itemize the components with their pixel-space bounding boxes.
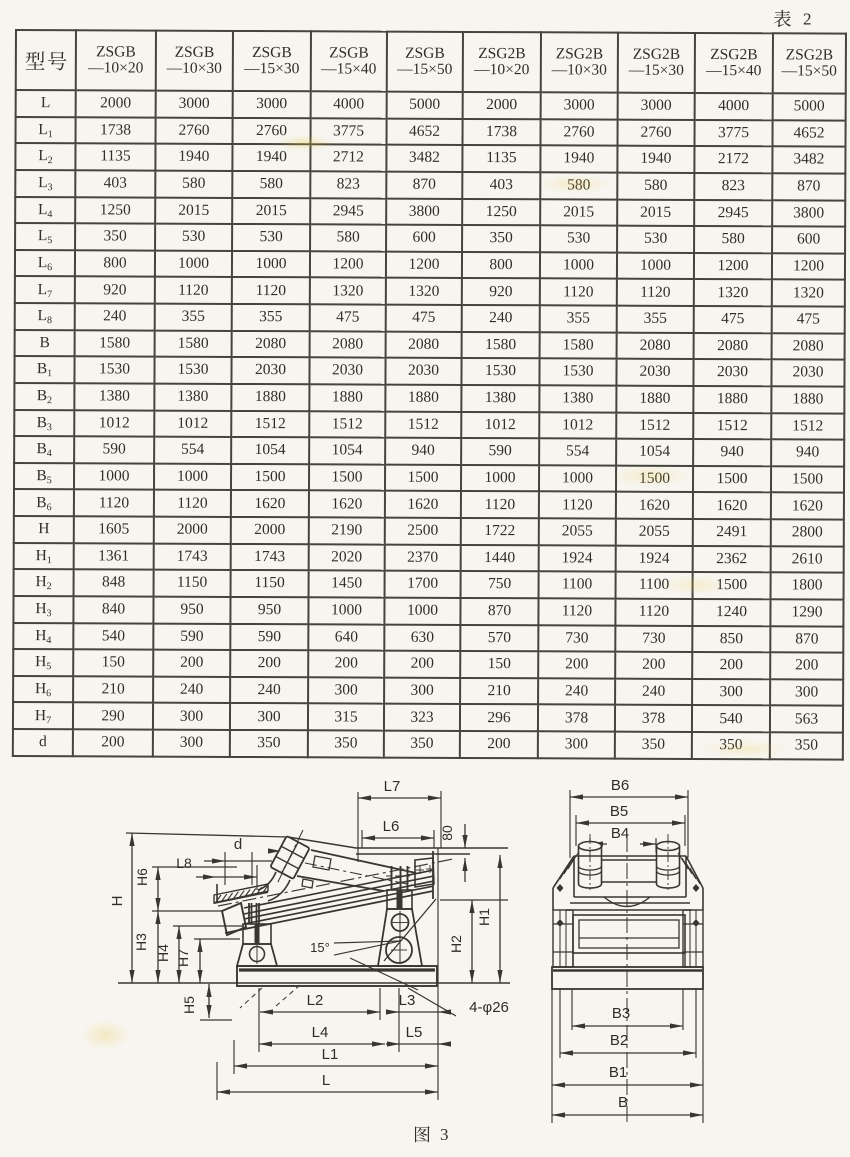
- svg-text:H4: H4: [155, 944, 171, 962]
- svg-text:15°: 15°: [310, 940, 330, 955]
- svg-text:H5: H5: [181, 996, 197, 1014]
- svg-text:B6: B6: [611, 777, 629, 794]
- svg-text:2: 2: [803, 10, 815, 29]
- svg-text:L1: L1: [322, 1046, 339, 1063]
- svg-text:B5: B5: [610, 803, 628, 820]
- svg-text:H6: H6: [134, 868, 150, 886]
- svg-text:B4: B4: [611, 825, 629, 842]
- svg-text:B: B: [618, 1094, 628, 1111]
- svg-text:B2: B2: [610, 1032, 628, 1049]
- svg-text:4-φ26: 4-φ26: [469, 999, 509, 1016]
- svg-text:H7: H7: [175, 949, 191, 967]
- svg-text:80: 80: [439, 825, 455, 841]
- svg-text:H2: H2: [448, 935, 464, 953]
- svg-text:d: d: [234, 836, 242, 853]
- svg-text:L2: L2: [307, 992, 324, 1009]
- svg-text:L: L: [322, 1072, 330, 1089]
- svg-text:L5: L5: [406, 1024, 423, 1041]
- svg-text:L4: L4: [312, 1024, 329, 1041]
- svg-text:L8: L8: [176, 855, 192, 871]
- svg-text:B3: B3: [612, 1005, 630, 1022]
- svg-text:3: 3: [440, 1125, 449, 1144]
- svg-text:H: H: [109, 896, 126, 907]
- svg-text:L7: L7: [384, 778, 401, 795]
- svg-text:L3: L3: [399, 992, 416, 1009]
- svg-text:B1: B1: [609, 1064, 627, 1081]
- svg-text:L6: L6: [383, 818, 400, 835]
- svg-text:H3: H3: [133, 933, 149, 951]
- svg-text:H1: H1: [476, 908, 492, 926]
